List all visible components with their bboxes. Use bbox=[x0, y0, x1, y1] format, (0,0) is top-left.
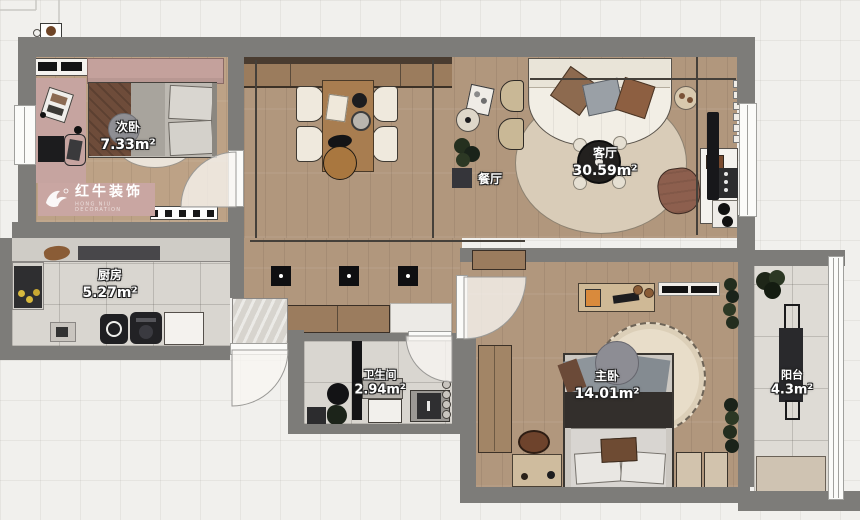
room-label-kitchen: 厨房 5.27m² bbox=[82, 268, 137, 302]
room-name: 次卧 bbox=[100, 120, 155, 136]
floorplan: 红牛装饰 HONG NIU DECORATION bbox=[0, 0, 860, 520]
brand-subtext: HONG NIU DECORATION bbox=[75, 201, 138, 213]
bull-icon bbox=[44, 187, 70, 213]
door-swing-bedroom2 bbox=[181, 152, 236, 207]
door-swing-bathroom bbox=[406, 336, 452, 382]
room-label-balcony: 阳台 4.3m² bbox=[771, 368, 813, 399]
room-name: 卫生间 bbox=[354, 368, 405, 382]
room-area: 7.33m² bbox=[100, 136, 155, 154]
room-label-living: 客厅 30.59m² bbox=[572, 146, 637, 180]
room-name: 客厅 bbox=[572, 146, 637, 162]
brand-logo: 红牛装饰 HONG NIU DECORATION bbox=[38, 183, 155, 216]
room-area: 30.59m² bbox=[572, 162, 637, 180]
room-area: 2.94m² bbox=[354, 383, 405, 400]
room-name: 阳台 bbox=[771, 368, 813, 382]
room-area: 4.3m² bbox=[771, 383, 813, 400]
room-area: 5.27m² bbox=[82, 284, 137, 302]
room-label-dining: 餐厅 bbox=[478, 172, 502, 188]
door-swing-master bbox=[464, 277, 526, 339]
room-label-master: 主卧 14.01m² bbox=[574, 369, 639, 403]
room-name: 餐厅 bbox=[478, 172, 502, 188]
room-name: 主卧 bbox=[574, 369, 639, 385]
door-swing-entry bbox=[232, 350, 288, 406]
room-label-bedroom2: 次卧 7.33m² bbox=[100, 120, 155, 154]
door-swings-and-beams bbox=[0, 0, 860, 520]
room-name: 厨房 bbox=[82, 268, 137, 284]
room-label-bathroom: 卫生间 2.94m² bbox=[354, 368, 405, 399]
room-area: 14.01m² bbox=[574, 385, 639, 403]
brand-name: 红牛装饰 bbox=[75, 185, 149, 199]
